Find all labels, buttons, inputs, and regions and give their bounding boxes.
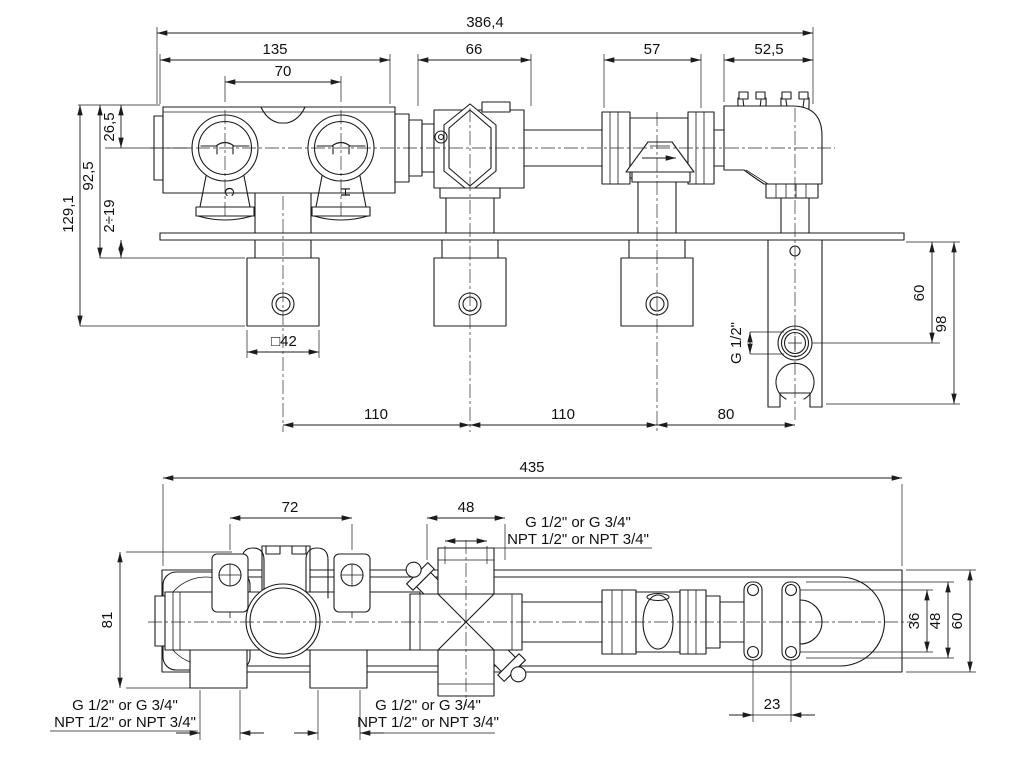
dim-label: 92,5	[80, 161, 97, 190]
check-valve	[602, 112, 714, 233]
thread-label: G 1/2"	[728, 322, 745, 364]
dim-label: □42	[271, 333, 297, 350]
dim-label: 66	[466, 41, 483, 58]
cold-marker: C	[222, 187, 237, 196]
outlet-elbow	[714, 92, 822, 233]
technical-drawing-page: C H	[0, 0, 1024, 765]
dim-label: 48	[927, 613, 944, 630]
dim-label: 435	[519, 459, 544, 476]
dim-label: 57	[644, 41, 661, 58]
bracket-plate	[744, 582, 762, 660]
dim-overall-width: 386,4	[157, 14, 813, 104]
dim-label: 98	[933, 316, 950, 333]
dim-label: 23	[764, 696, 781, 713]
diverter-valve	[434, 102, 524, 233]
dim-label: 36	[906, 613, 923, 630]
dim-label: 70	[275, 63, 292, 80]
dim-label: 386,4	[466, 14, 504, 31]
dim-clip-spacing: 72	[230, 499, 352, 550]
dim-label: 52,5	[754, 41, 783, 58]
dim-label: 81	[99, 612, 116, 629]
thread-label: NPT 1/2" or NPT 3/4"	[357, 714, 499, 731]
thread-label-inlet-left: G 1/2" or G 3/4" NPT 1/2" or NPT 3/4"	[50, 690, 264, 740]
thread-label-inlet-right: G 1/2" or G 3/4" NPT 1/2" or NPT 3/4"	[294, 690, 499, 740]
thread-label: NPT 1/2" or NPT 3/4"	[507, 531, 649, 548]
dim-handle-centers: 70	[225, 63, 341, 102]
dim-label: 48	[458, 499, 475, 516]
dim-label: 60	[949, 613, 966, 630]
front-view: C H	[60, 14, 960, 432]
plan-view: 435 72 48 G 1/2" or G 3/4" NPT 1/2" or N…	[50, 459, 976, 740]
bracket-plate	[782, 582, 800, 660]
inlet-port	[310, 650, 367, 688]
thread-label: G 1/2" or G 3/4"	[375, 697, 481, 714]
wall-plate	[160, 233, 904, 240]
dim-label: 110	[551, 406, 575, 423]
dim-diverter-width: 66	[418, 41, 531, 106]
dim-label: 135	[262, 41, 287, 58]
valve-technical-drawing: C H	[0, 0, 1024, 765]
dim-label: 110	[364, 406, 388, 423]
dim-check-valve-width: 57	[604, 41, 701, 108]
dim-label: 72	[282, 499, 299, 516]
thread-label: G 1/2" or G 3/4"	[72, 697, 178, 714]
thread-label: NPT 1/2" or NPT 3/4"	[54, 714, 196, 731]
dim-label: 60	[911, 285, 928, 302]
thread-label-top-port: G 1/2" or G 3/4" NPT 1/2" or NPT 3/4"	[489, 514, 652, 548]
dim-center-spacings: 110 110 80	[283, 406, 795, 425]
dim-label: 129,1	[60, 195, 77, 233]
dim-right-heights: 60 98	[812, 242, 960, 404]
mounting-clip	[212, 554, 248, 618]
dim-label: 2÷19	[101, 199, 118, 232]
cartridge-circle	[246, 584, 320, 658]
inlet-port	[190, 650, 247, 688]
thread-label: G 1/2" or G 3/4"	[525, 514, 631, 531]
dim-label: 26,5	[101, 112, 118, 141]
hot-marker: H	[338, 187, 353, 196]
mounting-clip	[334, 554, 370, 618]
dim-label: 80	[718, 406, 735, 423]
